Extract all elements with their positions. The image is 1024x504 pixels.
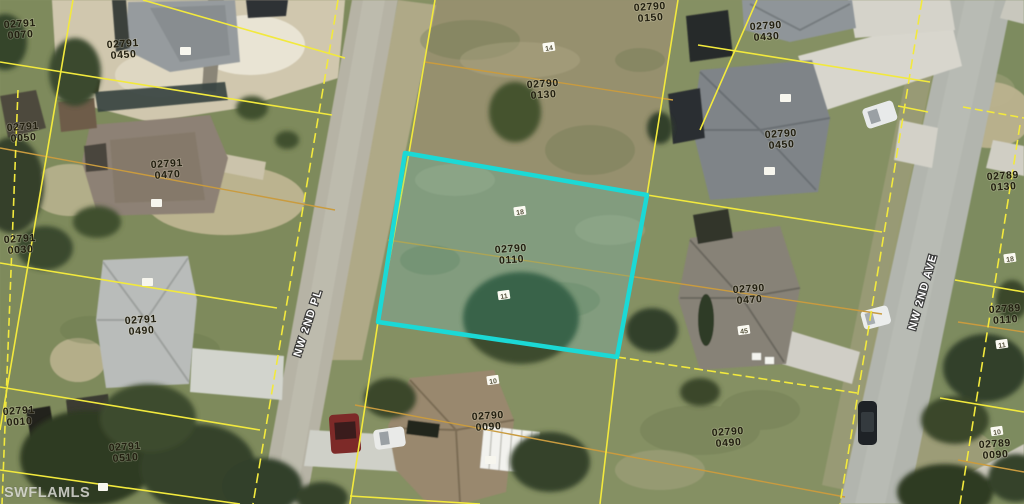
parcel-label-02790-0150: 027900150 bbox=[633, 0, 667, 25]
svg-text:0450: 0450 bbox=[768, 138, 795, 152]
parcel-label-02789-0130: 027890130 bbox=[986, 169, 1020, 194]
svg-text:0110: 0110 bbox=[499, 253, 525, 267]
parcel-label-02791-0490: 027910490 bbox=[124, 313, 158, 338]
svg-text:0490: 0490 bbox=[128, 324, 155, 338]
parcel-label-02790-0450: 027900450 bbox=[764, 127, 798, 152]
svg-text:0490: 0490 bbox=[715, 436, 742, 450]
svg-text:0150: 0150 bbox=[637, 11, 664, 25]
watermark-text: SWFLAMLS bbox=[4, 485, 90, 501]
svg-text:0450: 0450 bbox=[110, 48, 137, 62]
svg-text:0090: 0090 bbox=[982, 448, 1009, 462]
parcel-label-02791-0030: 027910030 bbox=[3, 232, 37, 257]
svg-text:0010: 0010 bbox=[6, 415, 33, 429]
car bbox=[373, 426, 406, 450]
parcel-label-02790-0470: 027900470 bbox=[732, 282, 766, 307]
parcel-label-02790-0110-highlighted: 027900110 bbox=[494, 242, 528, 267]
parcel-label-02791-0010: 027910010 bbox=[2, 404, 36, 429]
svg-text:0090: 0090 bbox=[475, 420, 502, 434]
parcel-label-02791-0050: 027910050 bbox=[6, 120, 40, 145]
svg-text:0110: 0110 bbox=[993, 313, 1019, 327]
parcel-label-02791-0510: 027910510 bbox=[108, 440, 142, 465]
svg-text:0470: 0470 bbox=[154, 168, 181, 182]
svg-text:0130: 0130 bbox=[530, 88, 557, 102]
car bbox=[329, 413, 362, 454]
lot-marker: 18 bbox=[516, 209, 525, 217]
lot-marker: 10 bbox=[993, 429, 1002, 437]
svg-text:0430: 0430 bbox=[753, 30, 780, 44]
aerial-parcel-map: 14 18 11 10 18 11 10 45 027910070 027910… bbox=[0, 0, 1024, 504]
lot-marker: 45 bbox=[740, 328, 749, 336]
parcel-label-02791-0470: 027910470 bbox=[150, 157, 184, 182]
parcel-label-02791-0450: 027910450 bbox=[106, 37, 140, 62]
parcel-label-02790-0090: 027900090 bbox=[471, 409, 505, 434]
parcel-label-02790-0130: 027900130 bbox=[526, 77, 560, 102]
svg-text:0510: 0510 bbox=[112, 451, 139, 465]
lot-marker: 18 bbox=[1006, 256, 1015, 264]
driveway bbox=[190, 348, 284, 400]
lot-marker: 11 bbox=[500, 293, 508, 301]
parcel-label-02790-0430: 027900430 bbox=[749, 19, 783, 44]
parcel-label-02789-0110: 027890110 bbox=[988, 302, 1022, 327]
svg-text:0130: 0130 bbox=[990, 180, 1017, 194]
lot-marker: 11 bbox=[998, 342, 1006, 350]
lot-marker: 10 bbox=[489, 378, 498, 386]
svg-text:0070: 0070 bbox=[7, 28, 34, 42]
parcel-label-02791-0070: 027910070 bbox=[3, 17, 37, 42]
svg-text:0050: 0050 bbox=[10, 131, 37, 145]
parcel-label-02790-0490: 027900490 bbox=[711, 425, 745, 450]
svg-text:0030: 0030 bbox=[7, 243, 34, 257]
parcel-label-02789-0090: 027890090 bbox=[978, 437, 1012, 462]
lot-marker: 14 bbox=[545, 45, 554, 53]
svg-text:0470: 0470 bbox=[736, 293, 763, 307]
car bbox=[858, 401, 877, 445]
